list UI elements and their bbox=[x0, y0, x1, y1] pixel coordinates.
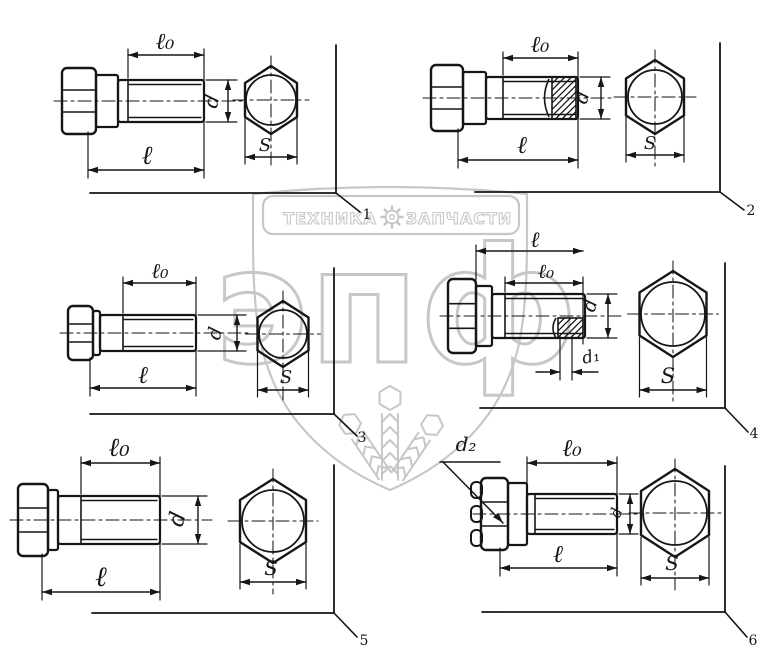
dim-label-diameter: d bbox=[578, 297, 602, 314]
dim-label-total-length: ℓ bbox=[517, 131, 527, 159]
dim-label-total-length: ℓ bbox=[530, 228, 540, 253]
dim-label-thread-length: ℓ₀ bbox=[562, 434, 582, 462]
dim-label-total-length: ℓ bbox=[138, 361, 148, 389]
arrowhead bbox=[225, 80, 231, 90]
arrowhead bbox=[194, 167, 204, 173]
arrowhead bbox=[476, 248, 486, 254]
dim-label-across-flats: S bbox=[644, 133, 656, 154]
arrowhead bbox=[258, 387, 268, 393]
slot-arc bbox=[553, 318, 556, 338]
arrowhead bbox=[225, 112, 231, 122]
dim-label-total-length: ℓ bbox=[553, 540, 563, 568]
hatch-area bbox=[538, 318, 617, 338]
dim-label-across-flats: S bbox=[665, 551, 679, 575]
dim-label-across-flats: S bbox=[259, 135, 271, 156]
dim-label-diameter: d bbox=[198, 92, 224, 111]
arrowhead bbox=[627, 494, 633, 504]
arrowhead bbox=[186, 280, 196, 286]
arrowhead bbox=[627, 524, 633, 534]
arrowhead bbox=[573, 248, 583, 254]
dim-label-across-flats: S bbox=[280, 367, 292, 388]
dim-label-diameter: d bbox=[606, 506, 626, 520]
line bbox=[584, 318, 604, 338]
arrowhead bbox=[195, 496, 201, 506]
dim-label-across-flats: S bbox=[264, 556, 278, 580]
dim-label-thread-length: ℓ₀ bbox=[531, 32, 550, 58]
arrowhead bbox=[607, 565, 617, 571]
arrowhead bbox=[234, 315, 240, 325]
dim-label-diameter: d bbox=[203, 325, 227, 342]
dim-label-hole-diameter: d₁ bbox=[580, 345, 601, 368]
arrowhead bbox=[194, 52, 204, 58]
arrowhead bbox=[503, 55, 513, 61]
panel-3: 3ℓ₀ℓdS bbox=[60, 259, 366, 446]
line bbox=[725, 408, 748, 432]
arrowhead bbox=[287, 154, 297, 160]
arrowhead bbox=[505, 280, 515, 286]
line bbox=[601, 77, 643, 119]
arrowhead bbox=[458, 157, 468, 163]
arrowhead bbox=[550, 369, 560, 375]
panel-number: 6 bbox=[749, 633, 758, 649]
arrowhead bbox=[568, 157, 578, 163]
panel-6: 6ℓ₀ℓdd₂S bbox=[440, 432, 758, 649]
dim-label-across-flats: S bbox=[661, 364, 675, 388]
line bbox=[720, 192, 744, 210]
dim-label-total-length: ℓ bbox=[95, 560, 107, 593]
arrowhead bbox=[527, 460, 537, 466]
arrowhead bbox=[90, 385, 100, 391]
dim-label-head-diameter: d₂ bbox=[456, 432, 477, 456]
panel-number: 3 bbox=[358, 430, 367, 446]
arrowhead bbox=[81, 460, 91, 466]
arrowhead bbox=[607, 460, 617, 466]
arrowhead bbox=[605, 294, 611, 304]
dim-label-diameter: d bbox=[164, 509, 192, 529]
arrowhead bbox=[573, 280, 583, 286]
arrowhead bbox=[123, 280, 133, 286]
panel-number: 4 bbox=[750, 426, 759, 442]
line bbox=[336, 193, 360, 212]
arrowhead bbox=[697, 387, 707, 393]
line bbox=[725, 612, 747, 637]
arrowhead bbox=[598, 109, 604, 119]
panel-number: 1 bbox=[363, 207, 372, 223]
arrowhead bbox=[186, 385, 196, 391]
arrowhead bbox=[605, 328, 611, 338]
dim-label-diameter: d bbox=[570, 89, 594, 106]
arrowhead bbox=[234, 341, 240, 351]
arrowhead bbox=[296, 579, 306, 585]
panel-2: 2ℓ₀ℓdS bbox=[423, 32, 755, 219]
arrowhead bbox=[568, 55, 578, 61]
dim-label-thread-length: ℓ₀ bbox=[151, 259, 169, 283]
arrowhead bbox=[150, 589, 160, 595]
arrowhead bbox=[150, 460, 160, 466]
arrowhead bbox=[640, 387, 650, 393]
panel-number: 2 bbox=[747, 203, 756, 219]
arrowhead bbox=[641, 575, 651, 581]
arrowhead bbox=[240, 579, 250, 585]
line bbox=[614, 77, 656, 119]
dim-label-thread-length: ℓ₀ bbox=[156, 29, 175, 55]
arrowhead bbox=[88, 167, 98, 173]
arrowhead bbox=[128, 52, 138, 58]
panel-number: 5 bbox=[360, 633, 369, 649]
arrowhead bbox=[626, 152, 636, 158]
line bbox=[334, 414, 357, 436]
arrowhead bbox=[42, 589, 52, 595]
arrowhead bbox=[699, 575, 709, 581]
dim-label-total-length: ℓ bbox=[142, 141, 153, 171]
arrowhead bbox=[195, 534, 201, 544]
arrowhead bbox=[572, 369, 582, 375]
arrowhead bbox=[674, 152, 684, 158]
arrowhead bbox=[245, 154, 255, 160]
arrowhead bbox=[500, 565, 510, 571]
dim-label-thread-length: ℓ₀ bbox=[538, 259, 554, 283]
dim-label-thread-length: ℓ₀ bbox=[108, 433, 130, 463]
arrowhead bbox=[598, 77, 604, 87]
arrowhead bbox=[299, 387, 309, 393]
line bbox=[334, 613, 357, 637]
panel-4: 4ℓ₀ℓdd₁S bbox=[440, 228, 759, 442]
catalog-page: ТЕХНИКА ЗАПЧАСТИ эпф 1ℓ₀ℓdS2ℓ₀ℓdS3ℓ₀ℓdS4… bbox=[0, 0, 782, 660]
bolt-diagrams: 1ℓ₀ℓdS2ℓ₀ℓdS3ℓ₀ℓdS4ℓ₀ℓdd₁S5ℓ₀ℓdS6ℓ₀ℓdd₂S bbox=[0, 0, 782, 660]
panel-1: 1ℓ₀ℓdS bbox=[54, 29, 371, 223]
panel-5: 5ℓ₀ℓdS bbox=[10, 433, 368, 649]
